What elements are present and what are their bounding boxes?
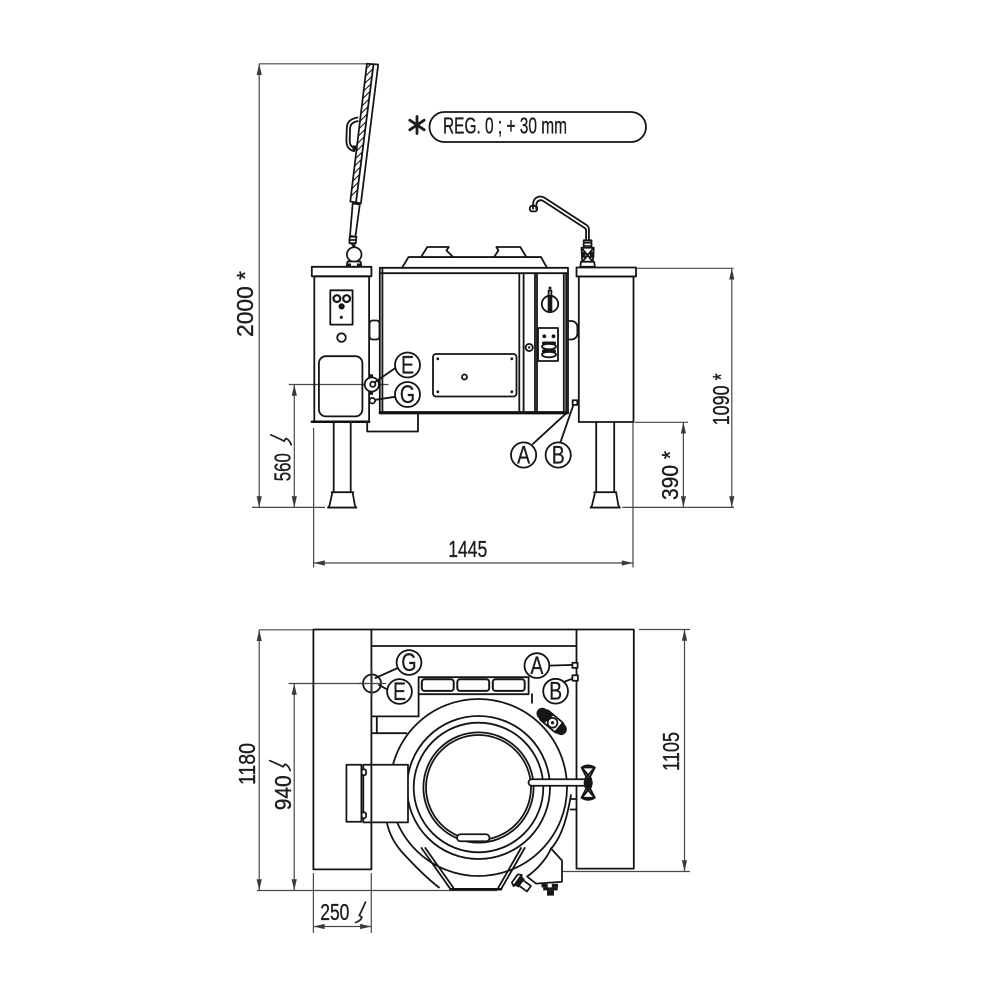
svg-text:1090 *: 1090 *: [708, 373, 734, 425]
svg-text:E: E: [401, 351, 414, 379]
svg-text:1180: 1180: [234, 743, 260, 785]
svg-text:1445: 1445: [448, 536, 487, 562]
svg-text:E: E: [393, 678, 406, 706]
svg-text:1105: 1105: [658, 732, 684, 771]
svg-text:B: B: [552, 441, 565, 469]
svg-text:B: B: [549, 677, 562, 705]
svg-text:940: 940: [270, 775, 296, 810]
svg-text:REG. 0 ; + 30 mm: REG. 0 ; + 30 mm: [443, 113, 567, 139]
svg-text:A: A: [517, 441, 530, 469]
svg-text:250: 250: [320, 899, 349, 925]
svg-text:A: A: [530, 652, 543, 680]
svg-text:2000 *: 2000 *: [232, 271, 258, 337]
svg-text:G: G: [401, 649, 416, 677]
svg-text:390 *: 390 *: [657, 451, 683, 500]
svg-text:560: 560: [270, 453, 296, 481]
svg-text:G: G: [400, 381, 415, 409]
